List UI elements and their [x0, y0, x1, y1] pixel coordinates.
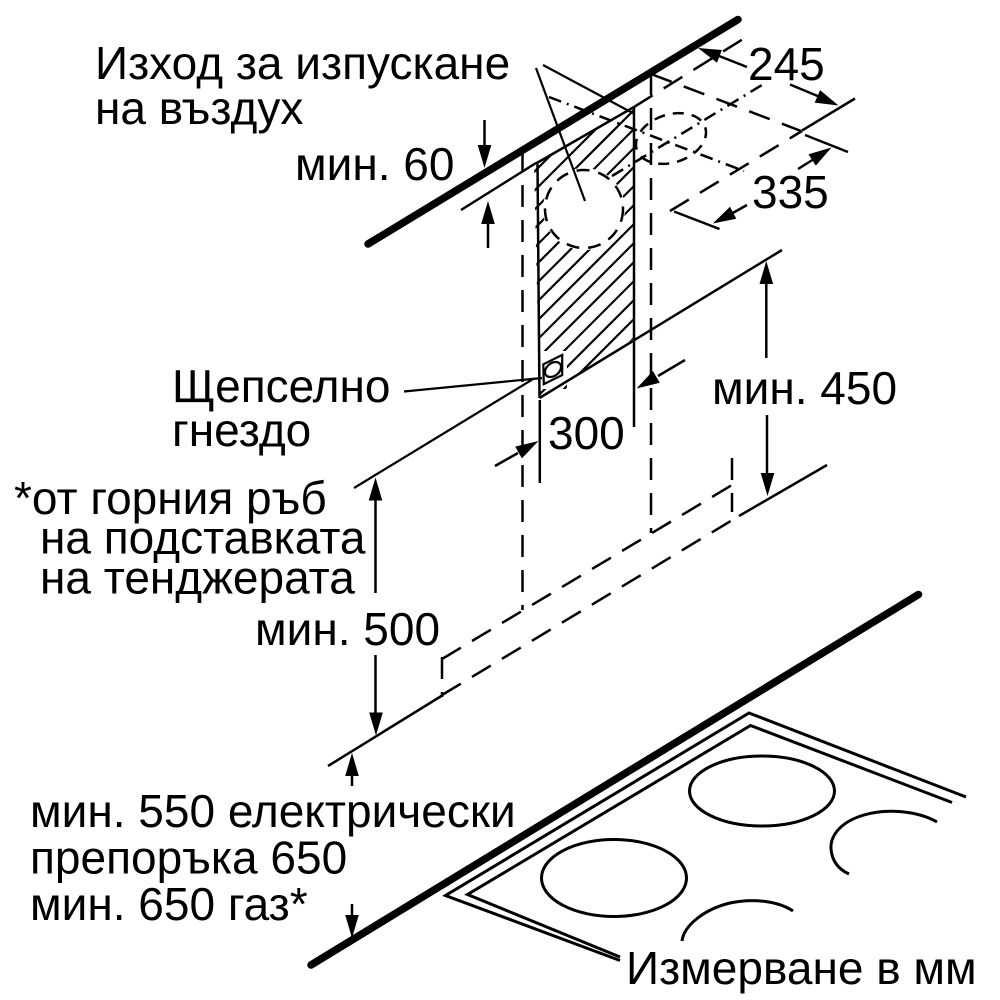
svg-text:на тенджерата: на тенджерата: [40, 552, 355, 604]
svg-text:335: 335: [752, 166, 829, 218]
svg-text:Измерване в мм: Измерване в мм: [626, 942, 977, 994]
svg-text:мин. 650 газ*: мин. 650 газ*: [30, 878, 308, 930]
svg-text:245: 245: [748, 38, 825, 90]
svg-text:мин. 450: мин. 450: [712, 362, 897, 414]
svg-text:препоръка 650: препоръка 650: [30, 832, 347, 884]
svg-text:мин. 60: мин. 60: [295, 138, 454, 190]
svg-text:на въздух: на въздух: [95, 82, 303, 134]
svg-text:300: 300: [548, 407, 625, 459]
svg-text:мин. 500: мин. 500: [255, 603, 440, 655]
svg-text:гнездо: гнездо: [172, 404, 311, 456]
svg-text:мин. 550 електрически: мин. 550 електрически: [30, 785, 516, 837]
